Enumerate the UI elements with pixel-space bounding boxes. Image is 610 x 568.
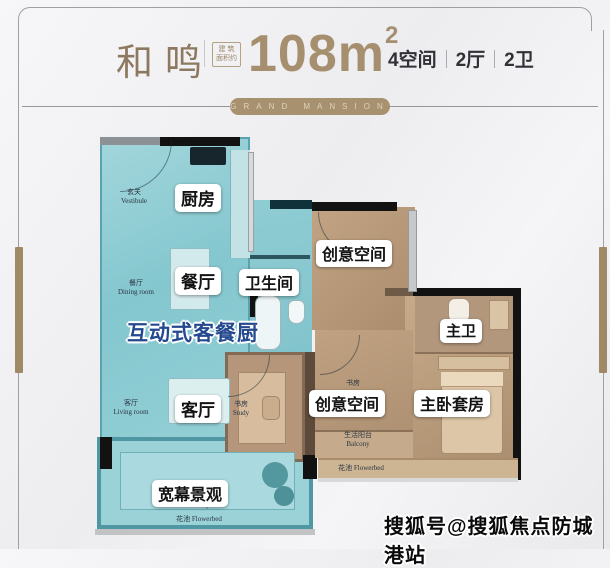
area-value: 108m2 [248, 22, 399, 84]
bed-pillows [441, 372, 503, 387]
plant [274, 486, 294, 506]
label-dining: 餐厅 [175, 267, 221, 295]
area-number: 108m [248, 25, 385, 83]
spec-halls: 2厅 [456, 45, 486, 72]
creative-window [408, 210, 417, 292]
desk-chair [262, 396, 280, 420]
page-title: 和鸣 [116, 32, 214, 86]
label-kitchen: 厨房 [175, 184, 221, 212]
spec-separator [494, 50, 495, 68]
annotation-vestibule: 玄关 Vestibule [112, 188, 156, 207]
feature-text: 互动式客餐厨 [127, 317, 259, 347]
watermark: 搜狐号@搜狐焦点防城港站 [384, 510, 610, 568]
stove [190, 147, 226, 165]
spec-spaces: 4空间 [388, 45, 437, 72]
wall-master-right [513, 288, 521, 480]
annotation-dining: 餐厅 Dining room [113, 279, 159, 298]
wall-creative-top [312, 202, 397, 211]
kitchen-counter [230, 150, 250, 258]
label-creative-bottom: 创意空间 [309, 390, 385, 417]
wall-balcony-post [100, 437, 112, 469]
frame-accent-right [599, 247, 607, 373]
master-sink [489, 300, 509, 330]
annotation-study-room: 书房 [338, 379, 368, 388]
header-divider [204, 40, 205, 67]
plant [262, 462, 288, 488]
annotation-study-nook: 书房 Study [218, 400, 264, 419]
annotation-life-balcony: 生活阳台 Balcony [332, 431, 384, 450]
area-badge: 建 筑 面积约 [212, 42, 241, 67]
frame-top [31, 7, 579, 8]
label-bathroom: 卫生间 [239, 269, 299, 296]
frame-corner-topleft [18, 7, 32, 31]
toilet [288, 300, 305, 324]
frame-corner-topright [578, 7, 592, 31]
label-master-suite: 主卧套房 [414, 390, 490, 417]
annotation-flowerbed-right: 花池 Flowerbed [328, 464, 394, 473]
wall-masterbath-top [413, 288, 520, 296]
wardrobe [438, 356, 510, 370]
banner-pill: GRAND MANSION [230, 98, 390, 115]
spec-list: 4空间 2厅 2卫 [388, 45, 534, 72]
balcony-sill [95, 529, 315, 535]
label-master-bath: 主卫 [440, 319, 482, 343]
annotation-living: 客厅 Living room [106, 399, 156, 418]
wall-corridor-top [270, 200, 312, 209]
label-creative-top: 创意空间 [316, 240, 392, 267]
wall-kitchen-top [160, 137, 240, 146]
spec-separator [446, 50, 447, 68]
wall-mid-post [303, 455, 317, 479]
spec-baths: 2卫 [504, 45, 534, 72]
label-living: 客厅 [175, 395, 221, 423]
wall-bathroom-divider [250, 255, 310, 259]
label-view: 宽幕景观 [152, 480, 228, 507]
frame-accent-left [15, 247, 23, 373]
annotation-flowerbed-bottom: 花池 Flowerbed [166, 515, 232, 524]
flowerbed-sill [318, 478, 518, 482]
kitchen-window [248, 152, 254, 252]
